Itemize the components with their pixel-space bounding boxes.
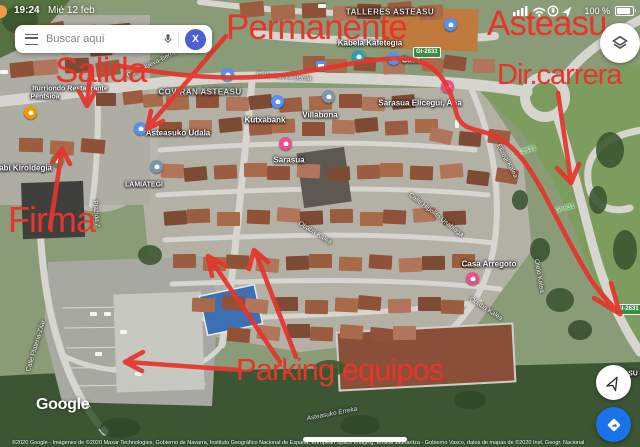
- map-label-kiroldegia[interactable]: rabi Kiroldegia: [0, 164, 52, 173]
- layers-button[interactable]: [600, 23, 640, 63]
- notification-pin-icon: [0, 5, 7, 18]
- map-label-sarasua-elicegui[interactable]: Sarasua Elicegui, Ana: [378, 99, 461, 108]
- annotation-dir-carrera: Dir.carrera: [497, 61, 621, 90]
- poi-pin[interactable]: [221, 68, 234, 81]
- sarasua-elicegui-pin[interactable]: [441, 80, 454, 93]
- home-indicator[interactable]: [303, 437, 407, 442]
- lamiategi-pin[interactable]: [150, 160, 163, 173]
- map-label-coviran-asteasu[interactable]: COVIRAN ASTEASU: [158, 88, 241, 97]
- map-label-villabona[interactable]: Villabona: [302, 111, 337, 120]
- status-bar: 19:24 Mié 12 feb 100 %: [0, 0, 640, 22]
- account-avatar[interactable]: X: [185, 29, 206, 50]
- restaurant-pin[interactable]: [24, 106, 37, 119]
- search-input[interactable]: [44, 32, 156, 46]
- annotation-salida: Salida: [55, 53, 146, 88]
- map-label-pentsioa[interactable]: Pentsioa: [30, 94, 59, 101]
- directions-diamond-icon: [603, 414, 625, 436]
- wifi-icon: [534, 8, 544, 16]
- rotation-lock-icon: [549, 6, 559, 16]
- my-location-button[interactable]: [596, 365, 631, 400]
- map-label-sarasua[interactable]: Sarasua: [273, 156, 304, 165]
- road-shield-gi2631-c: GI-2631: [614, 304, 640, 315]
- status-time: 19:24: [14, 5, 40, 16]
- location-arrow-icon: [563, 4, 575, 17]
- map-label-casa-arregoto[interactable]: Casa Arregoto: [462, 260, 517, 269]
- villabona-pin[interactable]: [322, 90, 335, 103]
- udala-pin[interactable]: [134, 122, 147, 135]
- kutxabank-pin[interactable]: [271, 95, 284, 108]
- annotation-parking-equipos: Parking equipos: [236, 354, 443, 385]
- post-office-icon[interactable]: [316, 61, 326, 71]
- battery-icon: [615, 6, 634, 16]
- divider: [178, 31, 179, 47]
- search-bar[interactable]: X: [15, 25, 212, 53]
- annotation-firma: Firma: [8, 202, 95, 238]
- battery-percent: 100 %: [584, 6, 610, 16]
- casa-home-pin[interactable]: [387, 52, 400, 65]
- navigation-arrow-icon: [605, 374, 623, 392]
- status-icons: [513, 4, 579, 18]
- layers-icon: [610, 33, 630, 53]
- casa-arregoto-pin[interactable]: [466, 272, 479, 285]
- google-logo: Google: [36, 396, 89, 414]
- status-date: Mié 12 feb: [48, 5, 95, 16]
- map-label-asteasuko-udala[interactable]: Asteasuko Udala: [146, 129, 210, 138]
- map-label-kutxabank[interactable]: Kutxabank: [245, 116, 286, 125]
- map-label-lamiategi[interactable]: LAMIATEGI: [125, 182, 163, 189]
- sarasua-pin[interactable]: [279, 137, 292, 150]
- google-maps-app: TALLERES ASTEASU Kabela Kafetegia Casa I…: [0, 0, 640, 447]
- cafe-pin[interactable]: [352, 50, 365, 63]
- kiroldegia-pin[interactable]: [51, 154, 64, 167]
- directions-button[interactable]: [596, 407, 631, 442]
- microphone-icon[interactable]: [162, 32, 174, 46]
- road-shield-gi2631-a: GI-2631: [413, 47, 441, 58]
- menu-icon[interactable]: [25, 34, 38, 45]
